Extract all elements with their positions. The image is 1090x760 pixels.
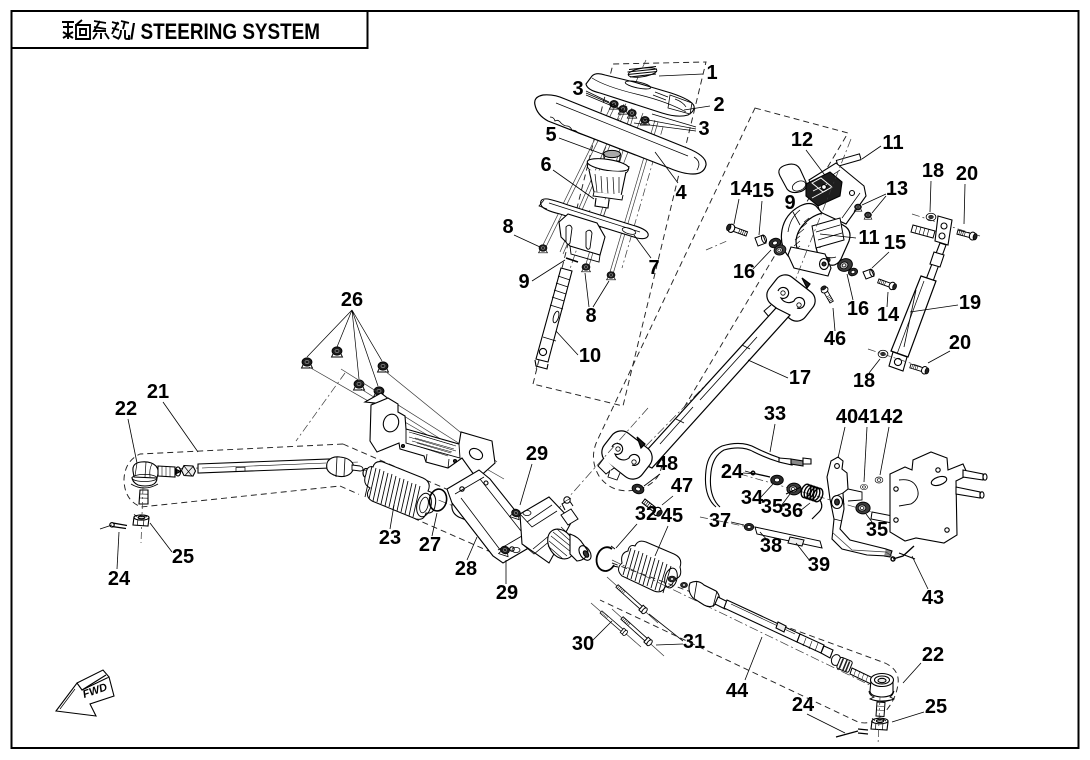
svg-text:35: 35 <box>761 496 783 518</box>
svg-text:40: 40 <box>836 406 858 428</box>
svg-text:32: 32 <box>635 503 657 525</box>
svg-text:22: 22 <box>922 644 944 666</box>
svg-text:4: 4 <box>675 182 687 204</box>
svg-text:36: 36 <box>781 500 803 522</box>
svg-text:/ STEERING SYSTEM: / STEERING SYSTEM <box>130 19 320 44</box>
svg-text:24: 24 <box>721 461 744 483</box>
svg-text:19: 19 <box>959 292 981 314</box>
svg-text:33: 33 <box>764 403 786 425</box>
svg-text:42: 42 <box>881 406 903 428</box>
svg-text:47: 47 <box>671 475 693 497</box>
svg-text:21: 21 <box>147 381 169 403</box>
svg-text:31: 31 <box>683 631 705 653</box>
svg-text:30: 30 <box>572 633 594 655</box>
svg-text:15: 15 <box>752 180 774 202</box>
svg-text:24: 24 <box>792 694 815 716</box>
svg-text:20: 20 <box>949 332 971 354</box>
svg-text:25: 25 <box>172 546 194 568</box>
svg-text:15: 15 <box>884 232 906 254</box>
svg-text:14: 14 <box>877 304 900 326</box>
svg-text:29: 29 <box>526 443 548 465</box>
svg-text:29: 29 <box>496 582 518 604</box>
svg-text:16: 16 <box>733 261 755 283</box>
svg-text:27: 27 <box>419 534 441 556</box>
svg-text:43: 43 <box>922 587 944 609</box>
svg-text:20: 20 <box>956 163 978 185</box>
svg-text:41: 41 <box>858 406 880 428</box>
svg-text:24: 24 <box>108 568 131 590</box>
svg-text:13: 13 <box>886 178 908 200</box>
svg-text:45: 45 <box>661 505 683 527</box>
svg-text:9: 9 <box>518 271 529 293</box>
svg-text:5: 5 <box>545 124 556 146</box>
svg-text:25: 25 <box>925 696 947 718</box>
svg-text:39: 39 <box>808 554 830 576</box>
svg-text:23: 23 <box>379 527 401 549</box>
svg-text:8: 8 <box>585 305 596 327</box>
svg-text:35: 35 <box>866 519 888 541</box>
svg-text:10: 10 <box>579 345 601 367</box>
svg-text:28: 28 <box>455 558 477 580</box>
svg-text:38: 38 <box>760 535 782 557</box>
svg-text:11: 11 <box>858 227 879 249</box>
svg-text:1: 1 <box>706 62 717 84</box>
svg-text:8: 8 <box>502 216 513 238</box>
svg-text:18: 18 <box>922 160 944 182</box>
svg-text:44: 44 <box>726 680 749 702</box>
svg-text:22: 22 <box>115 398 137 420</box>
svg-text:18: 18 <box>853 370 875 392</box>
svg-text:17: 17 <box>789 367 811 389</box>
svg-text:48: 48 <box>656 453 678 475</box>
svg-text:46: 46 <box>824 328 846 350</box>
svg-text:7: 7 <box>648 257 659 279</box>
svg-text:9: 9 <box>784 192 795 214</box>
svg-text:3: 3 <box>698 118 709 140</box>
svg-text:26: 26 <box>341 289 363 311</box>
svg-text:2: 2 <box>713 94 724 116</box>
svg-text:3: 3 <box>572 78 583 100</box>
svg-text:11: 11 <box>882 132 903 154</box>
svg-text:12: 12 <box>791 129 813 151</box>
svg-text:14: 14 <box>730 178 753 200</box>
svg-text:16: 16 <box>847 298 869 320</box>
svg-text:6: 6 <box>540 154 551 176</box>
